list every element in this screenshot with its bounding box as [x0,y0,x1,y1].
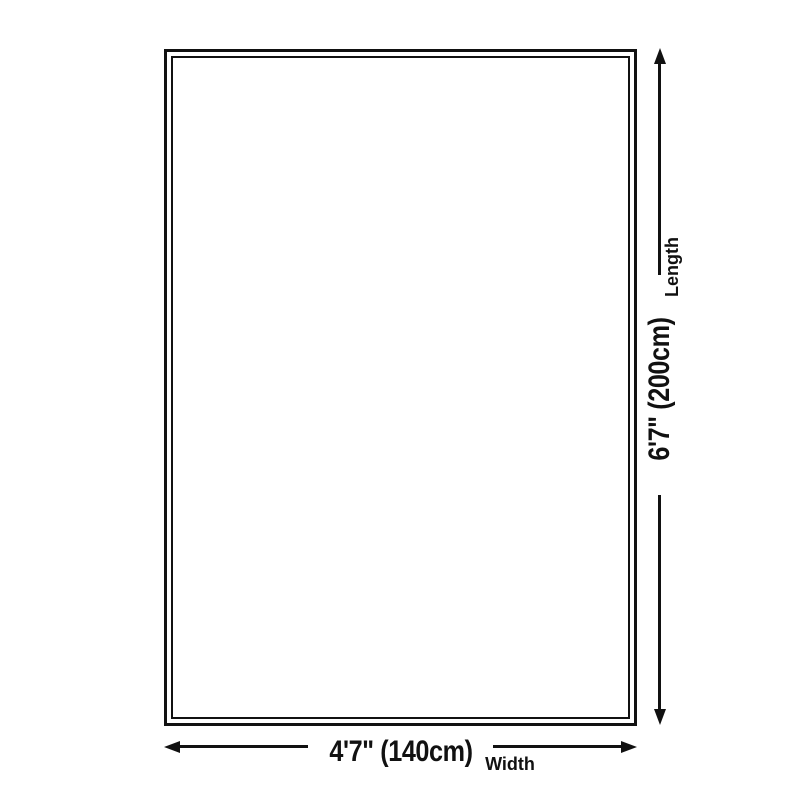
size-diagram: Length 6'7" (200cm) 4'7" (140cm) Width [0,0,800,800]
width-dimension-line-right [493,745,621,748]
length-dimension-line-upper [658,60,661,275]
rug-outline-inner [171,56,630,719]
rug-outline-outer [164,49,637,726]
width-dimension-line-left [176,745,308,748]
width-arrow-right-icon [621,741,637,753]
width-value-text: 4'7" (140cm) [329,737,472,767]
width-axis-label: Width [485,755,535,773]
length-axis-label: Length [663,237,681,297]
length-arrow-down-icon [654,709,666,725]
length-dimension-line-lower [658,495,661,709]
length-value-text: 6'7" (200cm) [645,317,675,460]
